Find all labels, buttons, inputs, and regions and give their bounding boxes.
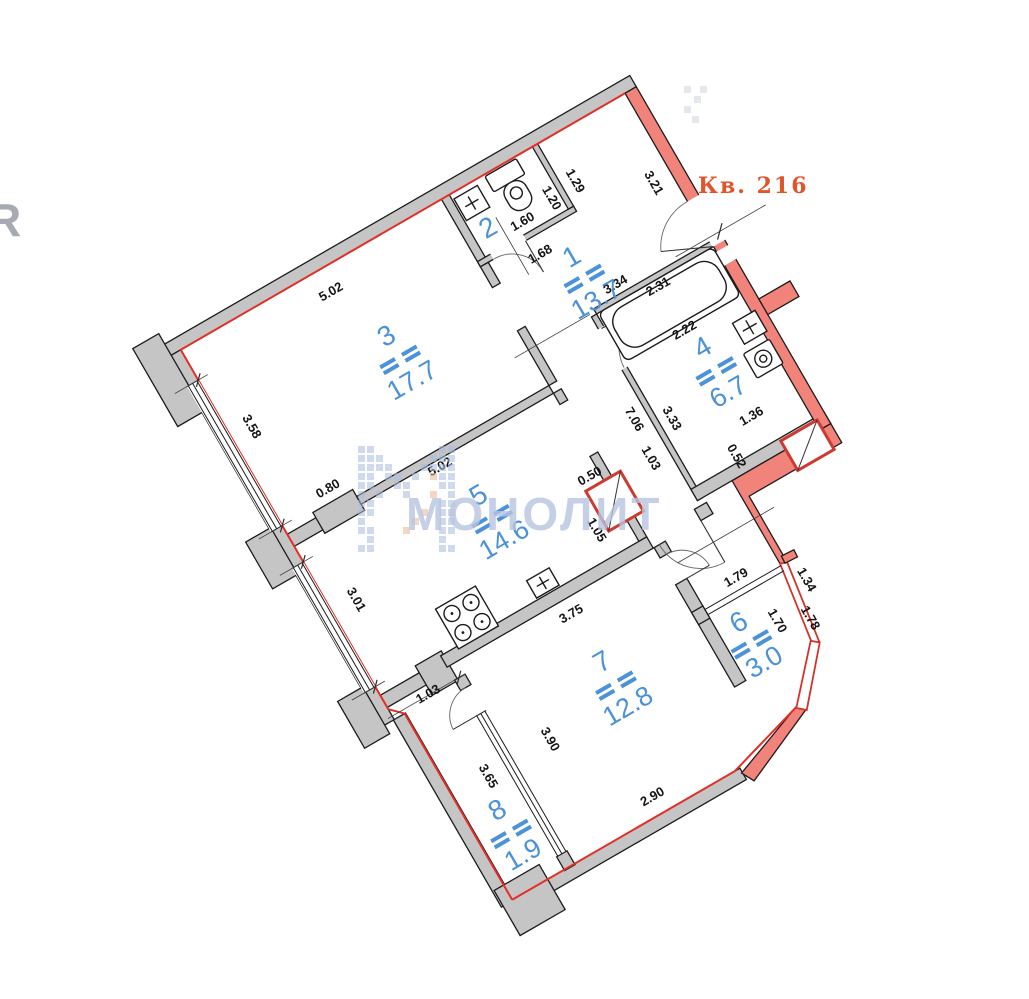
- edge-watermark-letter: R: [0, 194, 21, 246]
- floor-plan-page: 5.02 1.29 1.20 1.60 1.68 3.21 3.34 2.31 …: [0, 0, 1029, 999]
- watermark-text: МОНОЛИТ: [406, 488, 662, 540]
- apartment-number-label: Кв. 216: [698, 173, 809, 199]
- floor-plan-canvas: 5.02 1.29 1.20 1.60 1.68 3.21 3.34 2.31 …: [0, 0, 1029, 999]
